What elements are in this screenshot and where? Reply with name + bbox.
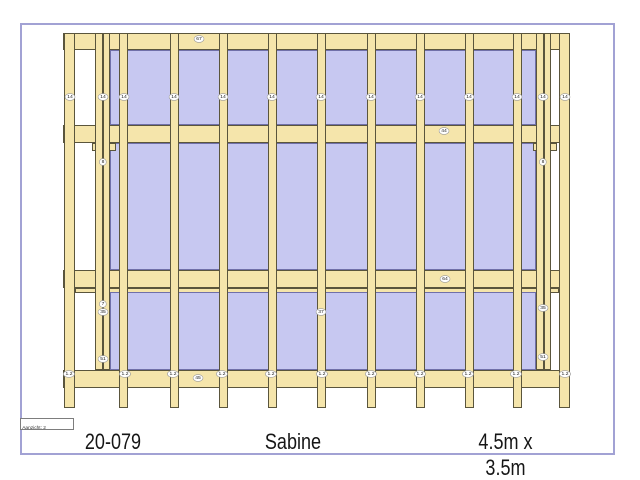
- piece-label: 14: [119, 93, 129, 100]
- piece-label: 1.2: [559, 370, 571, 377]
- piece-label: 37: [316, 308, 326, 315]
- piece-label: 1.2: [265, 370, 277, 377]
- piece-label: 14: [560, 93, 570, 100]
- stud: [544, 33, 551, 370]
- stud: [367, 33, 376, 408]
- view-label: Aanzicht: 2: [21, 425, 46, 430]
- piece-label: 14: [512, 93, 522, 100]
- piece-label: 1.2: [216, 370, 228, 377]
- piece-label: 14: [538, 93, 548, 100]
- stud: [317, 33, 326, 408]
- stud: [119, 33, 128, 408]
- piece-label: 14: [65, 93, 75, 100]
- piece-label: 14: [366, 93, 376, 100]
- piece-label: 1.2: [414, 370, 426, 377]
- piece-label: 51: [98, 355, 108, 362]
- frame-drawing: 6714141414141414141414141414448864735353…: [0, 0, 640, 480]
- drawing-sheet: 6714141414141414141414141414448864735353…: [0, 0, 640, 480]
- piece-label: 14: [169, 93, 179, 100]
- wall-dimensions: 4.5m x 3.5m: [458, 429, 552, 453]
- stud: [536, 33, 544, 370]
- piece-label: 64: [440, 275, 450, 282]
- project-name: Sabine: [248, 429, 338, 453]
- stud: [64, 33, 75, 408]
- piece-label: 1.2: [462, 370, 474, 377]
- piece-label: 35: [538, 304, 548, 311]
- piece-label: 14: [98, 93, 108, 100]
- stud: [219, 33, 228, 408]
- piece-label: 35: [98, 308, 108, 315]
- piece-label: 44: [439, 127, 449, 134]
- piece-label: 14: [415, 93, 425, 100]
- stud: [465, 33, 474, 408]
- piece-label: 1.2: [167, 370, 179, 377]
- stud: [95, 33, 103, 370]
- piece-label: 14: [316, 93, 326, 100]
- stud: [268, 33, 277, 408]
- piece-label: 1.2: [365, 370, 377, 377]
- piece-label: 67: [194, 35, 204, 42]
- piece-label: 14: [464, 93, 474, 100]
- stud: [513, 33, 522, 408]
- piece-label: 1.2: [316, 370, 328, 377]
- view-label-box: Aanzicht: 2: [20, 418, 74, 430]
- piece-label: 51: [538, 353, 548, 360]
- piece-label: 14: [267, 93, 277, 100]
- project-number: 20-079: [68, 429, 158, 453]
- piece-label: 1.2: [119, 370, 131, 377]
- stud: [559, 33, 570, 408]
- piece-label: 14: [218, 93, 228, 100]
- stud: [103, 33, 110, 370]
- piece-label: 45: [193, 374, 203, 381]
- stud: [170, 33, 179, 408]
- piece-label: 1.2: [63, 370, 75, 377]
- stud: [416, 33, 425, 408]
- piece-label: 1.2: [510, 370, 522, 377]
